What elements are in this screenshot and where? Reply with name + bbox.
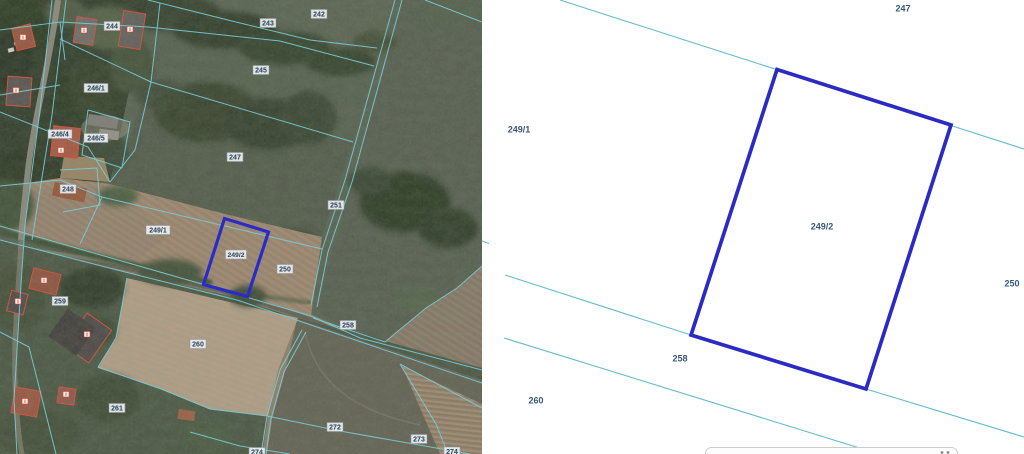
svg-text:245: 245: [255, 68, 267, 75]
svg-text:249/2: 249/2: [227, 252, 244, 259]
svg-text:259: 259: [54, 299, 66, 306]
svg-text:246/4: 246/4: [51, 132, 69, 139]
svg-text:274: 274: [446, 449, 458, 454]
svg-text:249/2: 249/2: [811, 222, 834, 232]
svg-text:260: 260: [528, 396, 543, 406]
svg-text:246/1: 246/1: [87, 86, 105, 93]
svg-text:243: 243: [262, 21, 274, 28]
svg-text:242: 242: [313, 12, 325, 19]
svg-text:249/1: 249/1: [149, 228, 167, 235]
svg-text:244: 244: [106, 24, 118, 31]
svg-text:261: 261: [111, 406, 123, 413]
svg-text:272: 272: [329, 425, 341, 432]
svg-text:258: 258: [672, 354, 687, 364]
svg-text:247: 247: [229, 155, 241, 162]
svg-text:258: 258: [342, 323, 354, 330]
svg-text:273: 273: [413, 437, 425, 444]
svg-text:249/1: 249/1: [508, 125, 531, 135]
svg-text:260: 260: [192, 342, 204, 349]
svg-text:247: 247: [895, 4, 910, 14]
svg-text:248: 248: [62, 187, 74, 194]
svg-text:246/5: 246/5: [87, 136, 105, 143]
svg-text:274: 274: [251, 450, 263, 454]
svg-text:250: 250: [279, 267, 291, 274]
svg-text:251: 251: [330, 203, 342, 210]
svg-text:250: 250: [1004, 279, 1019, 289]
